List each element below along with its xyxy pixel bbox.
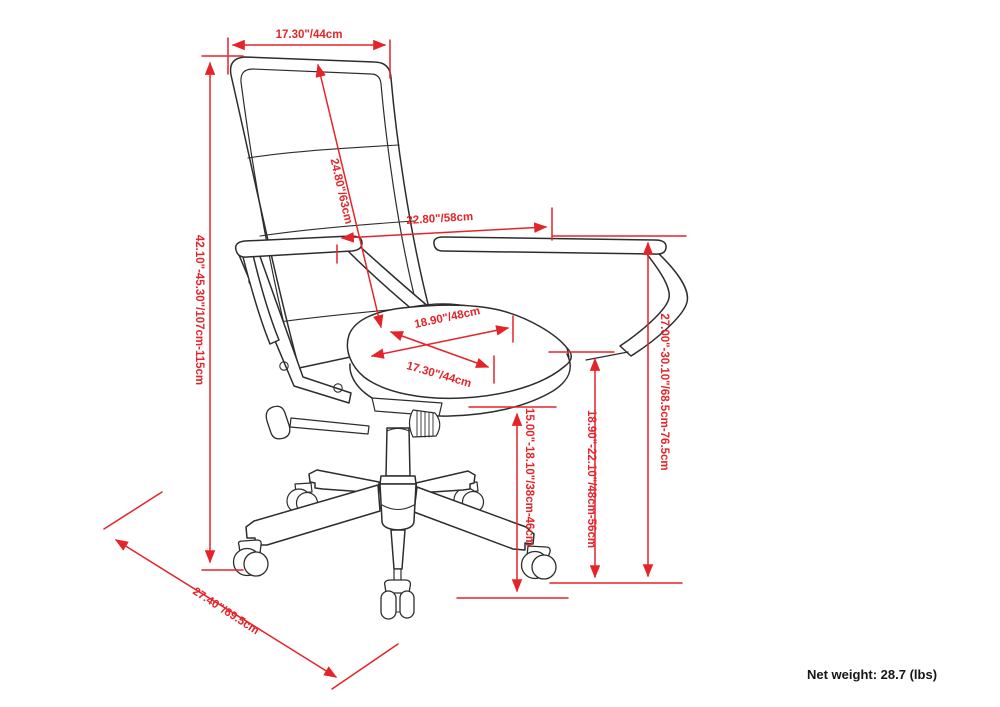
dim-backrest-width-label: 17.30"/44cm — [276, 29, 343, 41]
dim-overall-height-label: 42.10"-45.30"/107cm-115cm — [193, 235, 205, 385]
tilt-lever-handle — [266, 406, 290, 439]
front-caster — [381, 580, 414, 619]
right-armrest-foot — [586, 352, 628, 360]
gas-cylinder-tube — [386, 428, 410, 476]
right-caster — [522, 546, 557, 579]
dim-seat-height: 18.90"-22.10"/48cm-56cm — [549, 352, 614, 577]
gas-cylinder-collar — [380, 476, 416, 484]
front-caster-stem — [394, 569, 401, 581]
dim-armrest-height-label: 27.00"-30.10"/68.5cm-76.5cm — [658, 313, 670, 470]
net-weight-label: Net weight: 28.7 (lbs) — [807, 667, 937, 682]
dim-seat-height-label: 18.90"-22.10"/48cm-56cm — [585, 410, 597, 548]
dimension-diagram: 17.30"/44cm 24.80"/63cm 22.80"/58cm 18.9… — [0, 0, 1000, 707]
dim-overall-width-label: 22.80"/58cm — [406, 211, 473, 227]
dim-armrest-height: 27.00"-30.10"/68.5cm-76.5cm — [550, 236, 686, 583]
dim-base-diameter-label: 27.40"/69.5cm — [190, 586, 261, 638]
tilt-lever-shaft — [290, 418, 369, 434]
dim-overall-height: 42.10"-45.30"/107cm-115cm — [193, 56, 243, 570]
dim-base-diameter: 27.40"/69.5cm — [104, 492, 398, 689]
dim-seat-front-height-label: 15.00"-18.10"/38cm-46cm — [523, 408, 535, 546]
right-armrest-pad — [434, 237, 666, 254]
chair-dimension-drawing: 17.30"/44cm 24.80"/63cm 22.80"/58cm 18.9… — [0, 0, 1000, 707]
right-armrest-post — [620, 252, 687, 356]
base-leg-front-shaft — [391, 530, 405, 569]
